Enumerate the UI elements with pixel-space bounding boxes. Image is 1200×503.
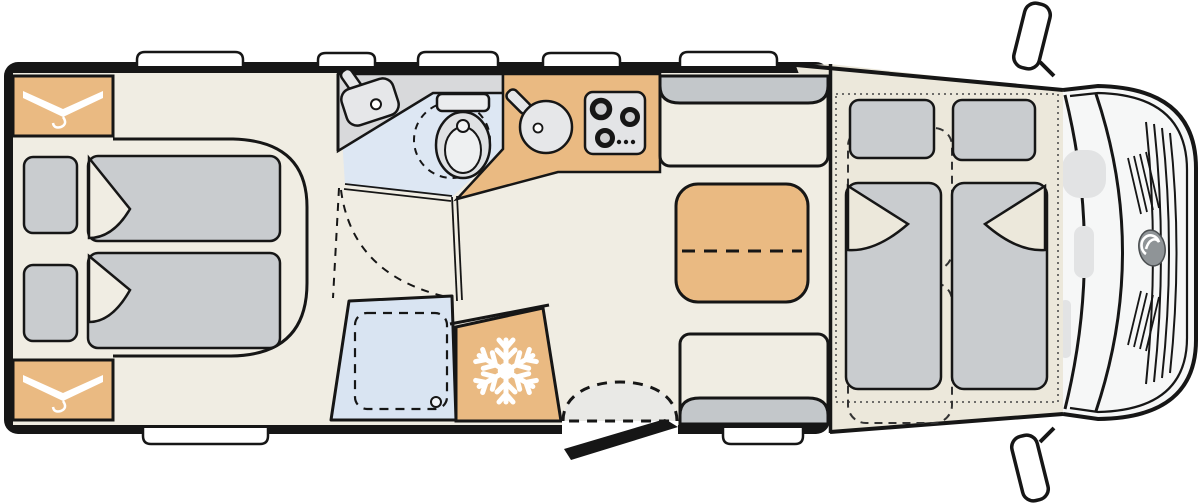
- window-top-3: [418, 52, 498, 66]
- pillow: [24, 157, 77, 233]
- knob-dot: [631, 140, 635, 144]
- toilet-lid: [437, 94, 489, 111]
- dinette: [660, 76, 828, 424]
- toilet-bowl-inner: [445, 127, 481, 173]
- mirror-head: [1011, 1, 1052, 71]
- rear-bed-bottom: [24, 253, 280, 348]
- knob-dot: [617, 140, 621, 144]
- mirror-arm: [1040, 62, 1054, 76]
- front-bench-backrest: [660, 76, 828, 103]
- refrigerator: [456, 308, 561, 421]
- dashboard-shape: [1074, 226, 1094, 278]
- window-bottom-1: [143, 428, 268, 444]
- sink-basin: [520, 101, 572, 153]
- window-top-4: [543, 53, 620, 66]
- sink-drain: [534, 124, 543, 133]
- mirror-arm: [1040, 428, 1054, 442]
- pillow: [850, 100, 934, 158]
- rear-bench-backrest: [680, 398, 828, 424]
- window-top-2: [318, 53, 375, 66]
- toilet-button: [457, 120, 469, 132]
- burner: [623, 110, 638, 125]
- mirror-bottom: [1009, 428, 1054, 503]
- entry-door: [562, 382, 678, 460]
- window-top-5: [680, 52, 777, 66]
- dashboard-shape: [1062, 150, 1106, 198]
- pillow: [24, 265, 77, 341]
- shower-drain: [431, 397, 441, 407]
- dinette-table: [676, 184, 808, 302]
- stove: [585, 92, 645, 154]
- window-bottom-2: [723, 428, 803, 444]
- window-top-1: [137, 52, 243, 66]
- mirror-top: [1011, 1, 1054, 76]
- mirror-head: [1009, 433, 1050, 503]
- shower: [331, 296, 456, 420]
- burner: [593, 101, 610, 118]
- pillow: [953, 100, 1035, 160]
- vehicle-front: [1060, 86, 1196, 419]
- knob-dot: [624, 140, 628, 144]
- burner: [598, 131, 613, 146]
- motorhome-floorplan: [0, 0, 1200, 503]
- rear-bed-top: [24, 156, 280, 241]
